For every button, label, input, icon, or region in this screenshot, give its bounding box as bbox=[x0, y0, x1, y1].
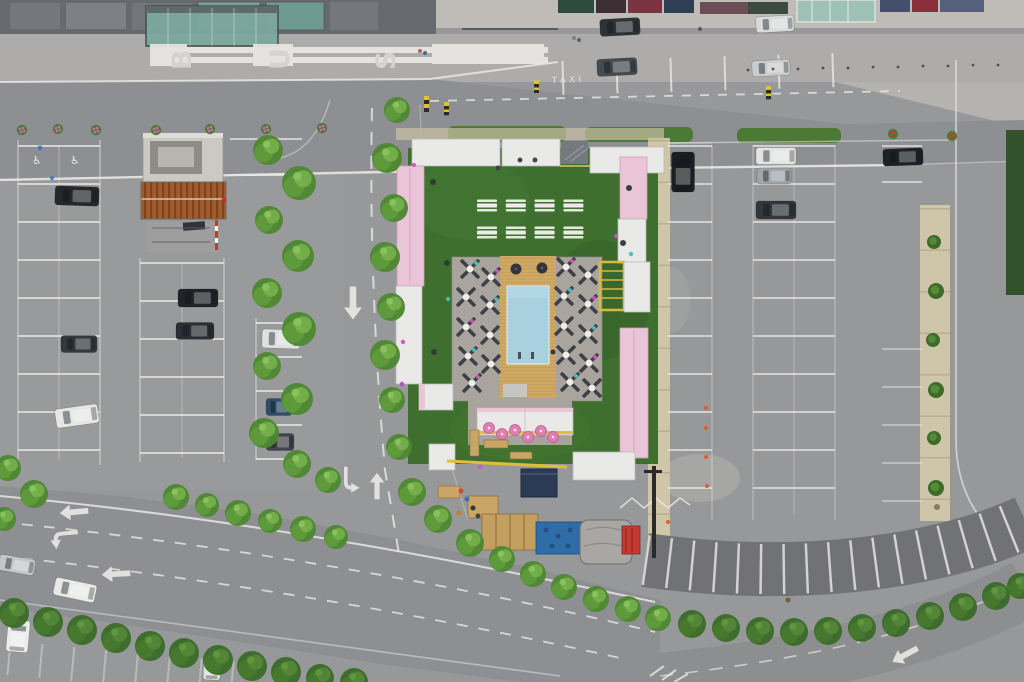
tree bbox=[814, 617, 842, 645]
small-object bbox=[786, 598, 791, 603]
car bbox=[752, 59, 791, 77]
car bbox=[600, 17, 641, 36]
tree bbox=[712, 614, 740, 642]
picnic-table bbox=[563, 227, 583, 239]
picnic-table bbox=[535, 227, 555, 239]
tree bbox=[456, 529, 484, 557]
stairwell-structure bbox=[141, 133, 226, 252]
small-object bbox=[418, 49, 422, 53]
wooden-bench bbox=[484, 440, 508, 448]
picnic-table bbox=[535, 200, 555, 212]
roof-panel bbox=[10, 3, 60, 29]
tree bbox=[258, 509, 282, 533]
tree bbox=[0, 598, 29, 628]
picnic-table bbox=[506, 227, 526, 239]
tree bbox=[253, 135, 283, 165]
small-object bbox=[518, 158, 523, 163]
tree bbox=[283, 450, 311, 478]
tree bbox=[678, 610, 706, 638]
tree bbox=[225, 500, 251, 526]
tree bbox=[249, 418, 279, 448]
tree bbox=[33, 607, 63, 637]
tree bbox=[163, 484, 189, 510]
shopfront-strip bbox=[596, 0, 626, 13]
small-object bbox=[423, 51, 427, 55]
car bbox=[756, 15, 795, 33]
tree bbox=[195, 493, 219, 517]
tree bbox=[520, 561, 546, 587]
car bbox=[756, 148, 796, 165]
worn-asphalt-patch bbox=[660, 454, 740, 502]
tree bbox=[848, 614, 876, 642]
bus-letter: S bbox=[371, 51, 402, 70]
parked-bikes bbox=[183, 221, 206, 231]
stacked-red-chairs bbox=[622, 526, 640, 554]
flower-planter bbox=[888, 129, 898, 139]
flower-planter bbox=[205, 124, 215, 134]
bush bbox=[928, 480, 944, 496]
beige-walkway bbox=[396, 128, 664, 140]
tree bbox=[282, 312, 316, 346]
tree bbox=[949, 593, 977, 621]
flower-planter bbox=[17, 125, 27, 135]
handicap-stall-symbol: ♿ bbox=[70, 154, 80, 167]
tree bbox=[377, 293, 405, 321]
shopfront-strip bbox=[700, 2, 748, 14]
utility-pole bbox=[652, 466, 656, 558]
small-object bbox=[459, 489, 464, 494]
bus-shelter bbox=[146, 6, 278, 46]
pink-umbrella bbox=[510, 425, 521, 436]
container-pink bbox=[620, 157, 647, 219]
tree bbox=[489, 546, 515, 572]
small-object bbox=[465, 497, 470, 502]
hedge-strip bbox=[1006, 130, 1024, 295]
tree bbox=[746, 617, 774, 645]
tree bbox=[169, 638, 199, 668]
small-object bbox=[747, 69, 750, 72]
small-object bbox=[533, 158, 538, 163]
bush bbox=[928, 382, 944, 398]
small-object bbox=[457, 511, 462, 516]
small-object bbox=[444, 260, 450, 266]
small-object bbox=[797, 68, 800, 71]
small-object bbox=[222, 198, 227, 203]
small-object bbox=[50, 176, 54, 180]
tree bbox=[290, 516, 316, 542]
small-object bbox=[997, 64, 1000, 67]
car bbox=[597, 57, 638, 76]
small-object bbox=[471, 506, 476, 511]
tree bbox=[20, 480, 48, 508]
bus-letter: U bbox=[265, 48, 296, 70]
small-object bbox=[872, 66, 875, 69]
flower-planter bbox=[53, 124, 63, 134]
small-object bbox=[614, 234, 618, 238]
tree bbox=[282, 240, 314, 272]
tree bbox=[645, 605, 671, 631]
small-object bbox=[496, 166, 501, 171]
car bbox=[178, 289, 218, 307]
pink-umbrella bbox=[523, 432, 534, 443]
wooden-bench bbox=[470, 430, 479, 456]
tree bbox=[384, 97, 410, 123]
pink-umbrella bbox=[484, 423, 495, 434]
bush bbox=[927, 235, 941, 249]
tree bbox=[551, 574, 577, 600]
car bbox=[55, 186, 100, 207]
small-object bbox=[430, 179, 436, 185]
navy-tent bbox=[521, 469, 557, 497]
shopfront-strip bbox=[912, 0, 938, 12]
small-object bbox=[922, 65, 925, 68]
picnic-table bbox=[563, 200, 583, 212]
small-object bbox=[972, 64, 975, 67]
shopfront-strip bbox=[628, 0, 662, 13]
picnic-table bbox=[477, 227, 497, 239]
bush bbox=[927, 431, 941, 445]
pink-umbrella bbox=[497, 429, 508, 440]
roof-panel bbox=[330, 2, 378, 30]
small-object bbox=[704, 426, 708, 430]
flower-planter bbox=[151, 125, 161, 135]
small-object bbox=[400, 382, 404, 386]
tree bbox=[372, 143, 402, 173]
pink-umbrella bbox=[536, 426, 547, 437]
small-object bbox=[446, 297, 450, 301]
tree bbox=[282, 166, 316, 200]
small-object bbox=[847, 67, 850, 70]
picnic-table bbox=[506, 200, 526, 212]
tree bbox=[398, 478, 426, 506]
car bbox=[756, 201, 796, 219]
small-object bbox=[476, 514, 481, 519]
small-object bbox=[822, 67, 825, 70]
small-object bbox=[698, 27, 702, 31]
small-object bbox=[401, 340, 405, 344]
beige-median bbox=[920, 205, 950, 521]
small-object bbox=[704, 455, 708, 459]
tree bbox=[583, 586, 609, 612]
tree bbox=[780, 618, 808, 646]
tree bbox=[203, 645, 233, 675]
small-object bbox=[577, 38, 581, 42]
pool-ladder bbox=[518, 352, 521, 359]
small-object bbox=[705, 484, 709, 488]
tree bbox=[135, 631, 165, 661]
tree bbox=[324, 525, 348, 549]
small-object bbox=[626, 185, 632, 191]
small-object bbox=[947, 65, 950, 68]
tree bbox=[379, 387, 405, 413]
small-object bbox=[772, 68, 775, 71]
barrier-pole bbox=[215, 220, 218, 250]
glass-canopy bbox=[797, 0, 875, 22]
pool-ladder bbox=[531, 352, 534, 359]
flower-planter bbox=[91, 125, 101, 135]
car bbox=[672, 152, 695, 192]
small-object bbox=[551, 350, 556, 355]
tree bbox=[101, 623, 131, 653]
taxi-road-marking: TAXI bbox=[551, 75, 585, 86]
shopfront-strip bbox=[880, 0, 910, 12]
container-white bbox=[624, 262, 650, 312]
car bbox=[61, 336, 97, 353]
small-object bbox=[934, 504, 940, 510]
shopfront-strip bbox=[748, 2, 788, 14]
aerial-photo: B U S TAXI ♿ bbox=[0, 0, 1024, 682]
car bbox=[757, 168, 791, 184]
small-object bbox=[666, 520, 670, 524]
flower-planter bbox=[317, 123, 327, 133]
tree bbox=[253, 352, 281, 380]
blue-crates bbox=[536, 522, 584, 554]
tree bbox=[380, 194, 408, 222]
tree bbox=[255, 206, 283, 234]
tree bbox=[386, 434, 412, 460]
small-object bbox=[572, 36, 576, 40]
tree bbox=[252, 278, 282, 308]
shopfront-strip bbox=[664, 0, 694, 13]
flower-planter bbox=[947, 131, 957, 141]
tree bbox=[882, 609, 910, 637]
bush bbox=[926, 333, 940, 347]
tree bbox=[315, 467, 341, 493]
bus-letter: B bbox=[167, 49, 198, 70]
tree bbox=[281, 383, 313, 415]
small-object bbox=[478, 465, 482, 469]
tree bbox=[916, 602, 944, 630]
small-object bbox=[412, 163, 416, 167]
small-object bbox=[38, 146, 43, 151]
tree bbox=[67, 615, 97, 645]
tree bbox=[370, 340, 400, 370]
small-object bbox=[629, 252, 633, 256]
wooden-crate bbox=[438, 486, 460, 498]
container-white bbox=[412, 139, 500, 166]
small-object bbox=[897, 66, 900, 69]
tree bbox=[615, 596, 641, 622]
tree bbox=[237, 651, 267, 681]
shopfront-strip bbox=[940, 0, 984, 12]
roof-panel bbox=[66, 3, 126, 29]
container-white bbox=[502, 139, 560, 166]
tree bbox=[982, 582, 1010, 610]
container-white bbox=[573, 452, 635, 480]
tree bbox=[370, 242, 400, 272]
car bbox=[883, 148, 924, 166]
deck-mat bbox=[503, 384, 527, 397]
picnic-table bbox=[477, 200, 497, 212]
container-white bbox=[429, 444, 455, 470]
small-object bbox=[704, 406, 708, 410]
small-object bbox=[620, 240, 626, 246]
tree bbox=[424, 505, 452, 533]
small-object bbox=[431, 349, 437, 355]
shopfront-strip bbox=[558, 0, 594, 13]
bike-rack-area bbox=[146, 222, 218, 252]
wooden-bench bbox=[510, 452, 532, 459]
bush bbox=[928, 283, 944, 299]
flower-planter bbox=[261, 124, 271, 134]
pink-umbrella bbox=[548, 432, 559, 443]
car bbox=[176, 323, 214, 340]
handicap-stall-symbol: ♿ bbox=[32, 154, 42, 167]
